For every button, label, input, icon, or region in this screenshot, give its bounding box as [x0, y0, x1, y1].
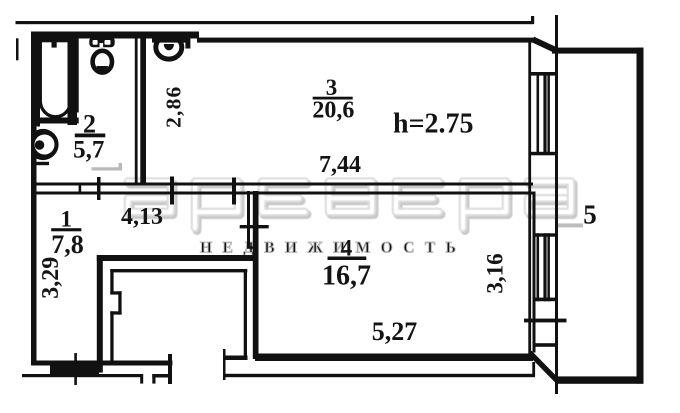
svg-text:5,7: 5,7	[73, 137, 104, 164]
svg-text:h=2.75: h=2.75	[393, 109, 474, 140]
svg-text:3,29: 3,29	[38, 257, 64, 299]
svg-text:3,16: 3,16	[483, 253, 508, 293]
svg-text:7,8: 7,8	[51, 230, 84, 259]
svg-text:7,44: 7,44	[319, 152, 361, 178]
svg-text:НЕДВИЖИМОСТЬ: НЕДВИЖИМОСТЬ	[200, 240, 466, 257]
svg-text:16,7: 16,7	[322, 261, 371, 292]
svg-text:5,27: 5,27	[372, 317, 418, 346]
svg-text:3: 3	[326, 75, 338, 100]
svg-text:5: 5	[583, 200, 597, 230]
svg-text:1: 1	[61, 207, 73, 232]
svg-text:20,6: 20,6	[312, 98, 354, 124]
svg-text:2,86: 2,86	[161, 85, 185, 127]
svg-text:4,13: 4,13	[121, 204, 163, 230]
